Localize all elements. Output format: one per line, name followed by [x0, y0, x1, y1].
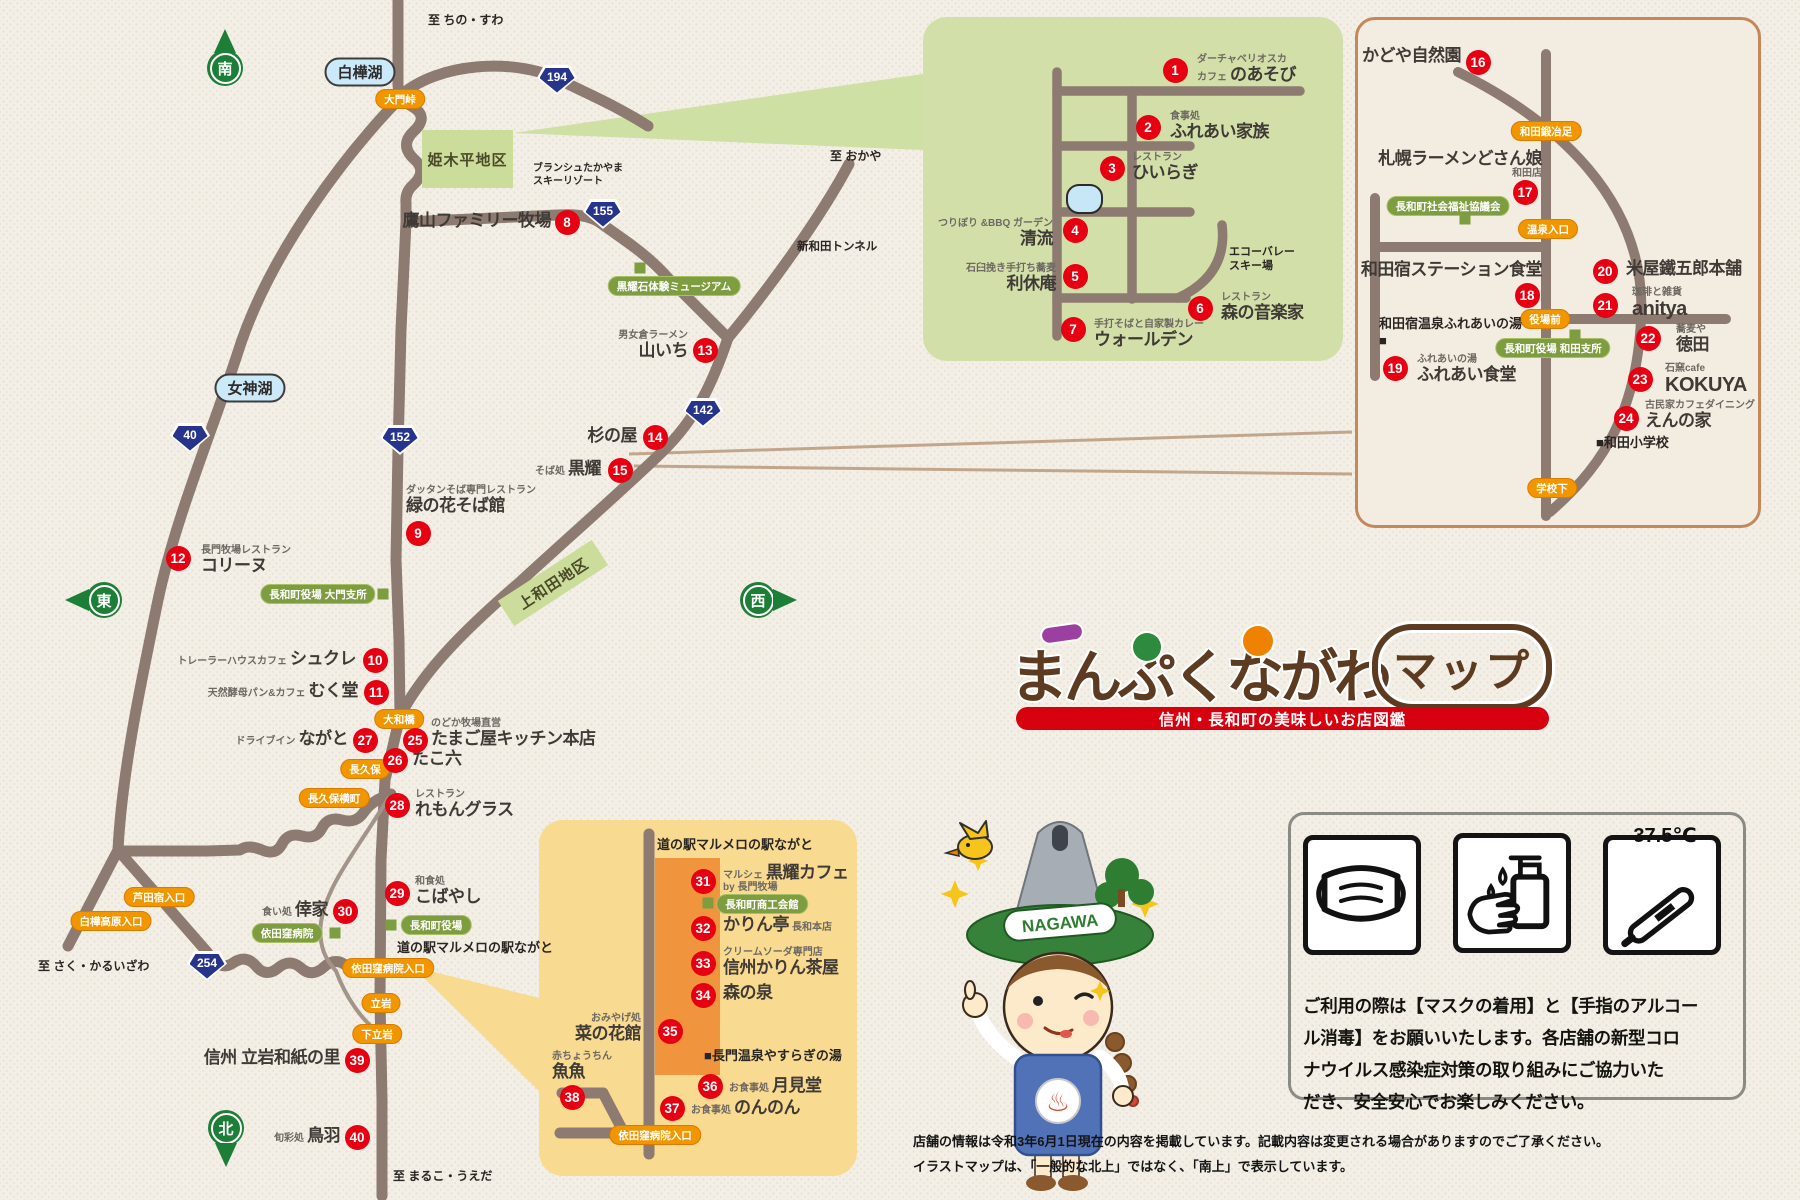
poi-label-9: ダッタンそば専門レストラン緑の花そば館	[406, 485, 536, 515]
thermometer-icon	[1603, 835, 1721, 955]
poi-label-33: クリームソーダ専門店信州かりん茶屋	[723, 947, 839, 977]
compass-label-north: 北	[211, 1113, 242, 1144]
poi-label-12: 長門牧場レストランコリーヌ	[201, 545, 291, 575]
footer-note-2: イラストマップは、「一般的な北上」ではなく、「南上」で表示しています。	[913, 1156, 1353, 1175]
orange-pill-4: 芦田宿入口	[124, 887, 195, 907]
mascot-face	[1004, 953, 1112, 1061]
route-badge-142: 142	[683, 398, 723, 428]
poi-marker-36: 36	[698, 1074, 723, 1099]
poi-marker-19: 19	[1383, 356, 1408, 381]
poi-marker-33: 33	[691, 951, 716, 976]
poi-label-2: 食事処ふれあい家族	[1170, 111, 1269, 141]
poi-label-36: お食事処月見堂	[729, 1076, 822, 1095]
poi-marker-11: 11	[364, 680, 389, 705]
route-number-194: 194	[540, 68, 575, 93]
map-text-8: 道の駅マルメロの駅ながと	[657, 837, 813, 854]
poi-label-23: 石窯cafeKOKUYA	[1665, 363, 1747, 397]
orange-pill-7: 立岩	[362, 993, 401, 1013]
orange-pill-11: 温泉入口	[1518, 219, 1578, 239]
poi-label-24: 古民家カフェダイニングえんの家	[1645, 400, 1755, 430]
route-badge-152: 152	[380, 425, 420, 455]
poi-marker-24: 24	[1614, 406, 1639, 431]
lake-pill-22: 女神湖	[214, 374, 285, 403]
compass-east: 東	[86, 582, 122, 618]
route-badge-254: 254	[187, 951, 227, 981]
footer-note-1: 店舗の情報は令和3年6月1日現在の内容を掲載しています。記載内容は変更される場合…	[913, 1131, 1609, 1150]
route-number-254: 254	[190, 954, 225, 979]
temperature-label: 37.5℃	[1609, 823, 1721, 848]
poi-label-27: ドライブインながと	[236, 729, 349, 748]
compass-pointer-south	[214, 29, 236, 53]
poi-label-39: 信州 立岩和紙の里	[204, 1048, 340, 1067]
green-pill-16: 依田窪病院	[252, 923, 323, 943]
route-badge-155: 155	[583, 199, 623, 229]
poi-label-20: 米屋鐵五郎本舗	[1626, 259, 1742, 278]
area-label-0: 姫木平地区	[422, 130, 513, 188]
poi-label-32: かりん亭長和本店	[723, 915, 832, 934]
poi-marker-7: 7	[1061, 317, 1086, 342]
poi-marker-5: 5	[1063, 264, 1088, 289]
route-badge-194: 194	[537, 65, 577, 95]
orange-pill-8: 下立岩	[352, 1024, 402, 1044]
pond-icon	[1066, 184, 1103, 214]
map-text-3: 至 まるこ・うえだ	[393, 1169, 492, 1185]
green-pill-15: 長和町役場 大門支所	[260, 584, 375, 604]
map-text-5: 新和田トンネル	[797, 240, 877, 255]
poi-label-35: おみやげ処菜の花館	[575, 1013, 641, 1043]
poi-label-38: 赤ちょうちん魚魚	[552, 1051, 612, 1081]
route-badge-40: 40	[170, 423, 210, 453]
poi-label-40: 旬彩処鳥羽	[274, 1126, 340, 1145]
map-text-1: 至 おかや	[830, 149, 881, 165]
poi-label-1: ダーチャベリオスカカフェのあそび	[1197, 54, 1296, 84]
poi-marker-10: 10	[363, 648, 388, 673]
poi-marker-17: 17	[1513, 180, 1538, 205]
poi-label-30: 食い処倖家	[262, 900, 328, 919]
orange-pill-13: 学校下	[1527, 478, 1577, 498]
logo-accent-orange	[1243, 626, 1273, 656]
map-text-11: ■和田小学校	[1596, 435, 1669, 452]
green-pill-17: 長和町役場	[401, 915, 472, 935]
logo-map-badge: マップ	[1372, 624, 1552, 710]
poi-label-22: 蕎麦や徳田	[1676, 324, 1709, 354]
facility-square-5	[1570, 330, 1581, 341]
poi-marker-27: 27	[353, 728, 378, 753]
logo-subtitle-banner: 信州・長和町の美味しいお店図鑑	[1016, 707, 1549, 730]
poi-marker-14: 14	[643, 425, 668, 450]
covid-notice-box: 37.5℃ ご利用の際は【マスクの着用】と【手指のアルコー ル消毒】をお願いいた…	[1288, 812, 1746, 1100]
poi-marker-3: 3	[1100, 156, 1125, 181]
poi-marker-29: 29	[385, 881, 410, 906]
poi-label-6: レストラン森の音楽家	[1221, 292, 1304, 322]
logo-title: まんぷくながわ	[1010, 630, 1388, 714]
poi-marker-26: 26	[383, 748, 408, 773]
route-number-152: 152	[383, 428, 418, 453]
facility-square-0	[635, 263, 646, 274]
svg-text:♨: ♨	[1046, 1087, 1070, 1117]
poi-marker-32: 32	[691, 916, 716, 941]
map-text-7: 道の駅マルメロの駅ながと	[397, 940, 553, 957]
orange-pill-10: 和田鍛冶足	[1511, 121, 1582, 141]
poi-marker-25: 25	[403, 728, 428, 753]
orange-pill-5: 白樺高原入口	[71, 911, 152, 931]
poi-label-4: つりぼり &BBQ ガーデン清流	[938, 218, 1053, 248]
poi-marker-40: 40	[345, 1125, 370, 1150]
orange-pill-3: 長久保横町	[299, 788, 370, 808]
orange-pill-1: 大和橋	[374, 709, 424, 729]
green-pill-20: 長和町商工会館	[716, 894, 808, 914]
poi-label-37: お食事処のんのん	[691, 1098, 800, 1117]
poi-marker-12: 12	[166, 546, 191, 571]
bird-icon	[946, 821, 992, 859]
area-label-1: 上和田地区	[498, 540, 608, 626]
map-text-4: ブランシュたかやま スキーリゾート	[533, 162, 623, 188]
poi-label-28: レストランれもんグラス	[415, 789, 514, 819]
orange-pill-9: 依田窪病院入口	[609, 1125, 701, 1145]
map-text-10: 和田宿温泉ふれあいの湯 ■	[1379, 316, 1522, 350]
poi-marker-21: 21	[1593, 293, 1618, 318]
route-number-155: 155	[586, 202, 621, 227]
compass-south: 南	[207, 50, 243, 86]
poi-marker-22: 22	[1636, 326, 1661, 351]
orange-pill-6: 依田窪病院入口	[342, 958, 434, 978]
route-number-40: 40	[173, 426, 208, 451]
facility-square-3	[386, 920, 397, 931]
poi-label-7: 手打そばと自家製カレーウォールデン	[1094, 319, 1204, 349]
poi-marker-31: 31	[691, 869, 716, 894]
mask-icon	[1303, 835, 1421, 955]
green-pill-18: 長和町社会福祉協議会	[1387, 196, 1510, 216]
poi-label-15: そば処黒耀	[535, 459, 601, 478]
poi-marker-18: 18	[1515, 283, 1540, 308]
poi-label-17: 札幌ラーメンどさん娘和田店	[1378, 149, 1542, 179]
poi-marker-6: 6	[1188, 296, 1213, 321]
logo-accent-green	[1133, 633, 1161, 661]
compass-pointer-east	[65, 589, 89, 611]
poi-marker-9: 9	[406, 521, 431, 546]
poi-marker-13: 13	[693, 338, 718, 363]
facility-square-4	[1460, 214, 1471, 225]
poi-marker-2: 2	[1136, 115, 1161, 140]
orange-pill-12: 役場前	[1520, 309, 1570, 329]
compass-pointer-west	[773, 589, 797, 611]
poi-marker-34: 34	[691, 983, 716, 1008]
compass-west: 西	[740, 582, 776, 618]
poi-label-14: 杉の屋	[588, 426, 638, 445]
poi-label-16: かどや自然園	[1362, 46, 1461, 65]
poi-marker-4: 4	[1063, 218, 1088, 243]
orange-pill-0: 大門峠	[375, 89, 425, 109]
compass-label-east: 東	[89, 585, 120, 616]
logo-subtitle: 信州・長和町の美味しいお店図鑑	[1159, 708, 1407, 730]
poi-marker-23: 23	[1628, 367, 1653, 392]
facility-square-2	[330, 928, 341, 939]
map-text-2: 至 さく・かるいざわ	[38, 959, 149, 975]
poi-label-18: 和田宿ステーション食堂	[1361, 260, 1542, 279]
compass-label-south: 南	[210, 53, 241, 84]
poi-label-21: 珈琲と雑貨anitya	[1632, 287, 1687, 321]
poi-label-19: ふれあいの湯ふれあい食堂	[1417, 354, 1516, 384]
poi-label-13: 男女倉ラーメン山いち	[618, 330, 688, 360]
poi-marker-15: 15	[608, 458, 633, 483]
poi-label-34: 森の泉	[723, 983, 773, 1002]
poi-label-25: のどか牧場直営たまご屋キッチン本店	[431, 718, 596, 748]
poi-label-29: 和食処こばやし	[415, 876, 481, 906]
facility-square-6	[703, 898, 714, 909]
poi-label-3: レストランひいらぎ	[1132, 152, 1198, 182]
green-pill-14: 黒耀石体験ミュージアム	[608, 276, 741, 296]
poi-marker-35: 35	[658, 1019, 683, 1044]
poi-label-11: 天然酵母パン&カフェむく堂	[208, 681, 358, 700]
poi-marker-37: 37	[660, 1096, 685, 1121]
route-number-142: 142	[686, 401, 721, 426]
map-text-0: 至 ちの・すわ	[428, 13, 503, 29]
map-text-9: ■長門温泉やすらぎの湯	[704, 1048, 842, 1065]
compass-pointer-north	[215, 1143, 237, 1167]
poi-marker-1: 1	[1163, 58, 1188, 83]
poi-marker-28: 28	[385, 793, 410, 818]
poi-marker-30: 30	[333, 899, 358, 924]
poi-label-8: 鷹山ファミリー牧場	[403, 211, 552, 230]
compass-north: 北	[208, 1110, 244, 1146]
poi-marker-20: 20	[1593, 259, 1618, 284]
poi-marker-8: 8	[555, 210, 580, 235]
map-text-6: エコーバレー スキー場	[1229, 245, 1295, 274]
poi-label-10: トレーラーハウスカフェシュクレ	[177, 649, 356, 668]
manpuku-nagawa-map-poster: 1ダーチャベリオスカカフェのあそび2食事処ふれあい家族3レストランひいらぎ4つり…	[0, 0, 1800, 1200]
sanitizer-icon	[1453, 833, 1571, 953]
poi-label-5: 石臼挽き手打ち蕎麦利休庵	[966, 263, 1056, 293]
facility-square-1	[378, 589, 389, 600]
notice-text: ご利用の際は【マスクの着用】と【手指のアルコー ル消毒】をお願いいたします。各店…	[1303, 991, 1735, 1118]
mascot-hat: NAGAWA	[967, 822, 1154, 965]
poi-marker-38: 38	[560, 1085, 585, 1110]
compass-label-west: 西	[743, 585, 774, 616]
poi-marker-39: 39	[345, 1048, 370, 1073]
lake-pill-21: 白樺湖	[324, 58, 395, 87]
poi-label-31: マルシェ黒耀カフェby 長門牧場	[723, 863, 849, 893]
poi-marker-16: 16	[1466, 50, 1491, 75]
